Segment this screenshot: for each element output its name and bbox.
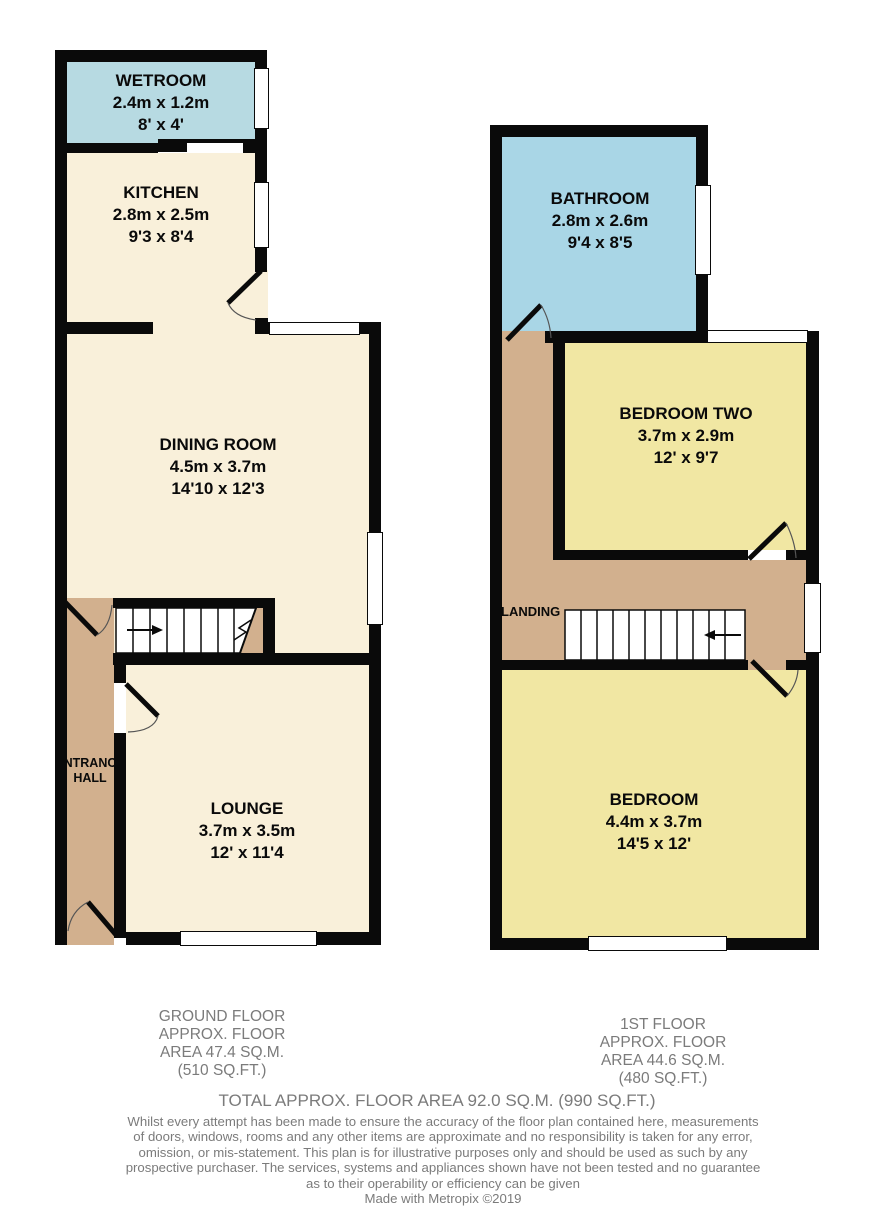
bedroom-window	[588, 936, 727, 951]
first-floor-summary: 1ST FLOOR APPROX. FLOOR AREA 44.6 SQ.M. …	[600, 1016, 727, 1088]
landing-label: LANDING	[501, 604, 560, 619]
bedroom-two-label: BEDROOM TWO 3.7m x 2.9m 12' x 9'7	[619, 403, 752, 469]
landing-strip-area	[502, 331, 553, 560]
room-dims-imperial: 14'5 x 12'	[606, 833, 702, 855]
room-name: BEDROOM	[606, 789, 702, 811]
room-dims-metric: 2.4m x 1.2m	[113, 92, 209, 114]
dining-room-label: DINING ROOM 4.5m x 3.7m 14'10 x 12'3	[159, 434, 276, 500]
ff-bed2-bottom-stub	[786, 550, 806, 560]
disclaimer-line: omission, or mis-statement. This plan is…	[126, 1145, 761, 1160]
ff-wall-left	[490, 125, 502, 950]
kitchen-window	[254, 182, 269, 248]
ff-landing-bottom-wall	[490, 660, 748, 670]
summary-line: AREA 44.6 SQ.M.	[600, 1052, 727, 1070]
gf-stair-right-wall	[263, 598, 275, 653]
room-dims-metric: 4.5m x 3.7m	[159, 456, 276, 478]
room-name: WETROOM	[113, 70, 209, 92]
wetroom-window	[254, 68, 269, 129]
gf-wall-right-upper-a	[255, 50, 267, 70]
wetroom-label: WETROOM 2.4m x 1.2m 8' x 4'	[113, 70, 209, 136]
ff-wall-top	[490, 125, 708, 137]
gf-wetroom-divider-wall	[55, 143, 158, 153]
ff-bath-right-a	[696, 125, 708, 185]
lounge-label: LOUNGE 3.7m x 3.5m 12' x 11'4	[199, 798, 295, 864]
room-dims-metric: 3.7m x 3.5m	[199, 820, 295, 842]
room-dims-imperial: 12' x 11'4	[199, 842, 295, 864]
ff-bed2-bottom-wall	[553, 550, 748, 560]
dining-side-window	[367, 532, 383, 625]
summary-line: APPROX. FLOOR	[159, 1026, 286, 1044]
gf-wall-right-upper-c	[255, 247, 267, 272]
room-dims-imperial: 14'10 x 12'3	[159, 478, 276, 500]
room-dims-metric: 2.8m x 2.6m	[551, 210, 650, 232]
bathroom-window	[695, 185, 711, 275]
total-floor-area: TOTAL APPROX. FLOOR AREA 92.0 SQ.M. (990…	[218, 1091, 655, 1111]
disclaimer-text: Whilst every attempt has been made to en…	[126, 1114, 761, 1206]
entrance-hall-label: ENTRANCE HALL	[55, 756, 124, 786]
disclaimer-line: prospective purchaser. The services, sys…	[126, 1160, 761, 1175]
lounge-window	[180, 931, 317, 946]
summary-line: GROUND FLOOR	[159, 1008, 286, 1026]
summary-line: (480 SQ.FT.)	[600, 1070, 727, 1088]
gf-wall-top	[55, 50, 267, 62]
bedroom-label: BEDROOM 4.4m x 3.7m 14'5 x 12'	[606, 789, 702, 855]
room-name: BEDROOM TWO	[619, 403, 752, 425]
room-dims-imperial: 12' x 9'7	[619, 447, 752, 469]
room-name: DINING ROOM	[159, 434, 276, 456]
bedroom-two-window	[707, 330, 808, 343]
room-name: BATHROOM	[551, 188, 650, 210]
bathroom-label: BATHROOM 2.8m x 2.6m 9'4 x 8'5	[551, 188, 650, 254]
room-dims-metric: 3.7m x 2.9m	[619, 425, 752, 447]
gf-wall-left	[55, 50, 67, 945]
gf-kitchen-dining-stub	[55, 322, 153, 334]
ff-bed2-left-wall	[553, 331, 565, 560]
kitchen-label: KITCHEN 2.8m x 2.5m 9'3 x 8'4	[113, 182, 209, 248]
summary-line: 1ST FLOOR	[600, 1016, 727, 1034]
room-dims-imperial: 9'4 x 8'5	[551, 232, 650, 254]
gf-lounge-top-wall	[113, 653, 381, 665]
gf-stair-top-wall	[113, 598, 275, 608]
room-name: KITCHEN	[113, 182, 209, 204]
room-dims-metric: 2.8m x 2.5m	[113, 204, 209, 226]
gf-wall-right-upper-b	[255, 128, 267, 182]
disclaimer-line: of doors, windows, rooms and any other i…	[126, 1129, 761, 1144]
summary-line: AREA 47.4 SQ.M.	[159, 1044, 286, 1062]
room-dims-metric: 4.4m x 3.7m	[606, 811, 702, 833]
gf-corner-block	[255, 318, 268, 334]
landing-window	[804, 583, 821, 653]
room-dims-imperial: 8' x 4'	[113, 114, 209, 136]
floorplan-canvas: WETROOM 2.4m x 1.2m 8' x 4' KITCHEN 2.8m…	[0, 0, 886, 1209]
room-name: LOUNGE	[199, 798, 295, 820]
dining-top-window	[269, 322, 360, 335]
kitchen-dining-passage	[153, 322, 255, 334]
room-name-line1: ENTRANCE	[55, 756, 124, 771]
summary-line: (510 SQ.FT.)	[159, 1062, 286, 1080]
metropix-credit: Made with Metropix ©2019	[126, 1191, 761, 1206]
ground-floor-summary: GROUND FLOOR APPROX. FLOOR AREA 47.4 SQ.…	[159, 1008, 286, 1080]
wetroom-sliding-door	[158, 139, 187, 152]
room-dims-imperial: 9'3 x 8'4	[113, 226, 209, 248]
disclaimer-line: Whilst every attempt has been made to en…	[126, 1114, 761, 1129]
disclaimer-line: as to their operability or efficiency ca…	[126, 1176, 761, 1191]
ff-landing-bottom-stub	[786, 660, 806, 670]
summary-line: APPROX. FLOOR	[600, 1034, 727, 1052]
gf-wall-right	[369, 322, 381, 945]
gf-wetroom-divider-right	[243, 139, 255, 153]
wetroom-door-line	[187, 139, 243, 143]
room-name-line2: HALL	[55, 771, 124, 786]
gf-hall-divider-a	[114, 665, 126, 683]
kitchen-door-gap	[255, 270, 268, 318]
